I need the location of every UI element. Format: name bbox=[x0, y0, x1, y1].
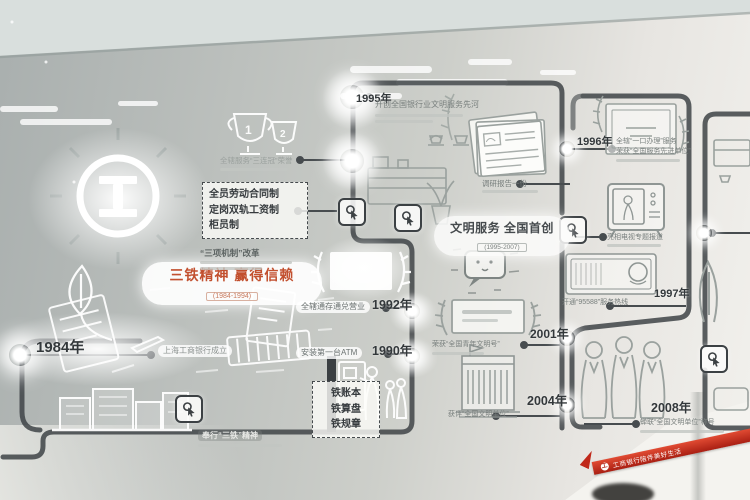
year-2008: 2008年 bbox=[651, 397, 691, 416]
theme-wenming: 文明服务 全国首创 (1995-2007) bbox=[434, 216, 570, 256]
theme-wenming-title: 文明服务 全国首创 bbox=[444, 219, 560, 236]
year-1984: 1984年 bbox=[36, 336, 84, 357]
caption-1984: 上海工商银行成立 bbox=[158, 345, 232, 357]
caption-1992: 全辖通存通兑营业 bbox=[296, 301, 370, 313]
caption-tv: 亮相电视专题报道 bbox=[607, 233, 663, 242]
tap-cursor-icon bbox=[344, 204, 360, 220]
caption-1996-2: 荣获“全国服务先进单位” bbox=[616, 147, 691, 156]
theme-wenming-dates: (1995-2007) bbox=[477, 243, 526, 252]
tap-icon-button bbox=[175, 395, 203, 423]
irons-line: 铁算盘 bbox=[319, 402, 373, 418]
tap-icon-button bbox=[700, 345, 728, 373]
fineprint bbox=[640, 430, 724, 433]
year-2004: 2004年 bbox=[527, 390, 567, 409]
caption-trophies: 全辖服务“三连冠”荣誉 bbox=[220, 156, 293, 166]
tv-illustration bbox=[608, 184, 664, 237]
timeline-node bbox=[559, 141, 575, 157]
caption-1990: 安装第一台ATM bbox=[296, 347, 362, 359]
year-1992: 1992年 bbox=[372, 294, 412, 313]
wall-photo: 1 2 bbox=[0, 0, 750, 500]
buildings-1984-illustration bbox=[52, 365, 192, 430]
year-1997: 1997年 bbox=[654, 285, 689, 301]
fineprint bbox=[482, 190, 538, 193]
caption-2004: 获评“全国文明单位” bbox=[448, 410, 509, 419]
barcode-building-illustration bbox=[456, 345, 520, 417]
caption-docs: 调研报告一份 bbox=[482, 179, 527, 189]
honor-plaque-illustration bbox=[435, 300, 541, 335]
tap-cursor-icon bbox=[706, 351, 722, 367]
reform-line: 柜员制 bbox=[209, 218, 301, 234]
timeline-node bbox=[340, 149, 364, 173]
timeline-node bbox=[9, 344, 31, 366]
reform-box: 全员劳动合同制 定岗双轨工资制 柜员制 bbox=[202, 182, 308, 239]
fineprint bbox=[198, 444, 282, 447]
irons-caption: 奉行“三铁”精神 bbox=[198, 430, 262, 441]
year-1990: 1990年 bbox=[372, 340, 412, 359]
caption-1995: 开创全国银行业文明服务先河 bbox=[375, 100, 479, 110]
fineprint bbox=[432, 352, 484, 355]
dark-object bbox=[592, 483, 654, 500]
tap-icon-button bbox=[338, 198, 366, 226]
fineprint bbox=[616, 159, 680, 162]
year-1996: 1996年 bbox=[577, 133, 612, 149]
irons-line: 铁账本 bbox=[319, 386, 373, 402]
reform-line: 全员劳动合同制 bbox=[209, 187, 301, 203]
report-documents-illustration bbox=[469, 112, 546, 176]
fineprint bbox=[607, 244, 661, 247]
banknote-illustration bbox=[566, 254, 656, 294]
year-2001: 2001年 bbox=[530, 325, 569, 342]
caption-1996-1: 全辖“一口办理”服务 bbox=[616, 137, 677, 146]
svg-text:1: 1 bbox=[245, 123, 252, 137]
fineprint bbox=[200, 267, 262, 270]
irons-box: 铁账本 铁算盘 铁规章 bbox=[312, 381, 380, 438]
reform-line: 定岗双轨工资制 bbox=[209, 203, 301, 219]
tap-cursor-icon bbox=[181, 401, 197, 417]
tap-icon-button bbox=[394, 204, 422, 232]
fineprint bbox=[220, 168, 288, 171]
award-plaque-illustration bbox=[311, 252, 411, 292]
icbc-ribbon-logo: 工 bbox=[600, 461, 609, 470]
theme-santie-dates: (1984-1994) bbox=[206, 292, 258, 301]
trophy-illustration: 1 2 bbox=[228, 114, 296, 154]
caption-1997: 开通“95588”服务热线 bbox=[562, 298, 628, 307]
fineprint bbox=[200, 261, 292, 264]
caption-2008: 蝉联“全国文明单位”称号 bbox=[640, 418, 715, 427]
svg-text:2: 2 bbox=[280, 129, 286, 140]
irons-line: 铁规章 bbox=[319, 417, 373, 433]
fineprint bbox=[375, 114, 463, 117]
icbc-logo bbox=[50, 128, 186, 264]
caption-2001: 荣获“全国青年文明号” bbox=[432, 340, 500, 349]
timeline-node bbox=[696, 225, 712, 241]
fineprint bbox=[375, 120, 433, 123]
reform-caption: “三项机制”改革 bbox=[200, 247, 260, 259]
tap-cursor-icon bbox=[400, 210, 416, 226]
